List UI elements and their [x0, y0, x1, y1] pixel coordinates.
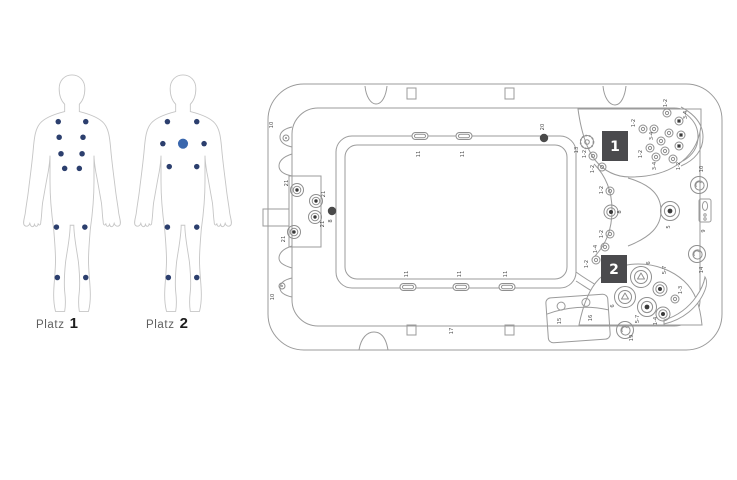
jet-small [606, 230, 614, 238]
body-dot [194, 164, 200, 170]
seat-badge-number: 2 [609, 262, 619, 278]
jet-small [592, 256, 600, 264]
body-dot [201, 141, 207, 147]
jet-number-label: 10 [699, 166, 705, 173]
seat-badge-number: 1 [610, 139, 620, 155]
jet-number-label: 5-7 [662, 266, 668, 274]
jet-number-label: 21 [321, 191, 327, 198]
jet-number-label: 1-2 [599, 186, 605, 194]
jet-number-label: 1-2 [631, 119, 637, 127]
jet-ring [608, 232, 611, 235]
seat-badge-2: 2 [601, 255, 627, 283]
jet-swirl [691, 177, 708, 194]
body-dot [194, 119, 200, 125]
rim-bump [359, 332, 388, 350]
jet-number-label: 11 [416, 151, 422, 158]
body-dot [82, 224, 88, 230]
platz-1-number: 1 [70, 315, 78, 332]
body-dot [56, 119, 62, 125]
jet-ring [606, 230, 614, 238]
platz-2-caption: Platz2 [146, 315, 188, 333]
body-dot [83, 275, 89, 281]
jet-number-label: 20 [540, 124, 546, 131]
body-dot [62, 166, 68, 172]
jet-darkdot [540, 134, 548, 142]
rim-scallop [280, 278, 292, 297]
body-dot [167, 164, 173, 170]
jet-number-label: 11 [457, 271, 463, 278]
jet-ring [603, 245, 606, 248]
body-dot [54, 224, 60, 230]
jet-darkdot [328, 207, 336, 215]
jet-number-label: 1-2 [638, 150, 644, 158]
jet-number-label: 11 [503, 271, 509, 278]
wall-fitting [400, 284, 416, 291]
body-dot [80, 135, 86, 141]
jet-number-label: 1-2 [590, 165, 596, 173]
jet-number-label: 6 [646, 261, 652, 264]
platz-1-label: Platz [36, 319, 65, 331]
jet-number-label: 10 [269, 122, 275, 129]
lounge-front-contour [628, 178, 661, 246]
spa-side-box [263, 209, 289, 226]
jet-number-label: 1-2 [599, 230, 605, 238]
jet-ring [691, 177, 708, 194]
jet-number-label: 14 [699, 266, 705, 273]
body-dot [77, 166, 83, 172]
body-dot [194, 224, 200, 230]
lounge-back-contour [594, 164, 612, 256]
body-dot [58, 151, 64, 157]
jet-number-label: 10 [270, 294, 276, 301]
rim-bump [603, 86, 626, 105]
jet-number-label: 1-2 [676, 162, 682, 170]
rim-bump [365, 86, 387, 104]
jet-number-label: 11 [404, 271, 410, 278]
jet-number-label: 19 [629, 335, 635, 342]
jet-ring [621, 326, 630, 335]
rim-tab [505, 88, 514, 99]
jet-dots-platz-1 [54, 119, 89, 280]
wall-fitting [453, 284, 469, 291]
jet-number-label: 15 [557, 318, 563, 325]
rim-scallop [279, 246, 292, 268]
jet-number-label: 6 [610, 304, 616, 307]
rim-tab [407, 88, 416, 99]
jet-number-label: 3-4 [649, 131, 655, 140]
seat-badge-1: 1 [602, 131, 628, 161]
platz-2-label: Platz [146, 319, 175, 331]
pool-basin-inner [345, 145, 567, 279]
jet-number-label: 11 [460, 151, 466, 158]
wall-fitting [412, 133, 428, 140]
jet-mini [283, 135, 289, 141]
jet-number-label: 1-2 [582, 150, 588, 158]
jet-number-label: 21 [284, 180, 290, 187]
body-outline [24, 75, 121, 312]
jet-number-label: 1-2 [663, 99, 669, 107]
wall-fitting [499, 284, 515, 291]
body-dot [79, 151, 85, 157]
jet-number-label: 21 [320, 221, 326, 228]
jet-big [661, 202, 680, 221]
jet-ring [594, 258, 597, 261]
jet-number-label: 8 [617, 210, 623, 213]
platz-2-number: 2 [180, 315, 188, 332]
pool-basin-outer [336, 136, 576, 288]
control-panel [699, 199, 711, 222]
jet-number-label: 13 [574, 147, 580, 154]
body-dot [56, 135, 62, 141]
jet-number-label: 3-4 [652, 161, 658, 170]
seat-badges: 12 [601, 131, 628, 283]
jet-number-label: 3-4 [683, 110, 689, 119]
jet-number-label: 21 [281, 236, 287, 243]
jet-ring [689, 246, 706, 263]
body-figure-platz-1 [17, 71, 127, 319]
jet-number-label: 5 [666, 225, 672, 228]
jet-ring [693, 250, 702, 259]
jet-number-label: 16 [588, 315, 594, 322]
spa-top-view: 10108212121212013111111111117109141-23-4… [262, 74, 734, 358]
body-dot [194, 275, 200, 281]
body-dot [165, 224, 171, 230]
jet-number-label: 5-7 [635, 315, 641, 323]
platz-1-caption: Platz1 [36, 315, 78, 333]
jet-number-label: 1-4 [593, 244, 599, 253]
body-dot [165, 119, 171, 125]
jet-number-label: 8 [328, 219, 334, 222]
body-dot [55, 275, 61, 281]
jet-number-label: 1-3 [678, 286, 684, 294]
body-outline [135, 75, 232, 312]
jet-number-label: 9 [701, 229, 707, 232]
jet-ring [592, 256, 600, 264]
body-figure-platz-2 [128, 71, 238, 319]
wall-fitting [456, 133, 472, 140]
body-dot-large [178, 139, 188, 149]
rim-scallop [279, 154, 292, 176]
body-dot [160, 141, 166, 147]
jet-placement-diagram: Platz1 Platz2 [0, 0, 737, 480]
jet-number-label: 17 [449, 328, 455, 335]
left-jet-panel [289, 176, 321, 247]
jet-med [604, 205, 618, 219]
body-dot [166, 275, 172, 281]
jet-swirl [689, 246, 706, 263]
body-dot [83, 119, 89, 125]
jet-number-label: 1-2 [584, 260, 590, 268]
jet-number-label: 1-4 [653, 316, 659, 325]
